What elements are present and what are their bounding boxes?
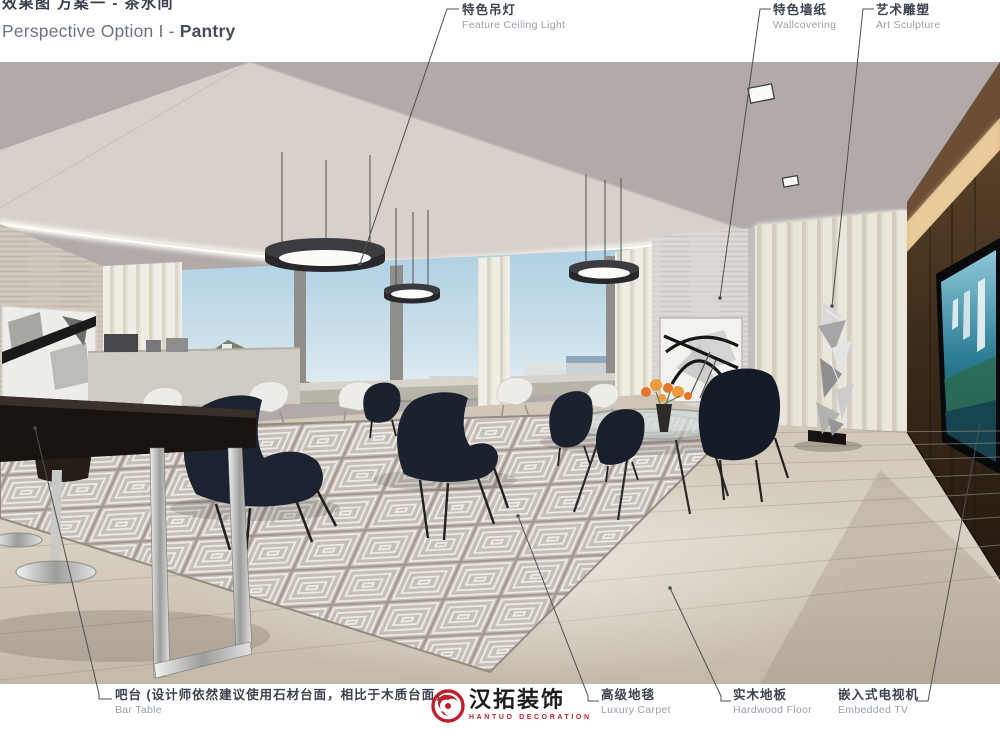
- annotation-feature-ceiling-light-zh: 特色吊灯: [462, 2, 565, 18]
- annotation-embedded-tv: 嵌入式电视机 Embedded TV: [838, 687, 919, 718]
- logo-name-cn: 汉拓装饰: [469, 687, 592, 713]
- annotation-feature-ceiling-light: 特色吊灯 Feature Ceiling Light: [462, 2, 565, 33]
- annotation-hardwood-floor-zh: 实木地板: [733, 687, 812, 703]
- pendant-light-medium: [384, 284, 440, 304]
- interior-render: [0, 0, 1000, 729]
- annotation-luxury-carpet-zh: 高级地毯: [601, 687, 671, 703]
- logo-name-en: HANTUO DECORATION: [469, 714, 592, 721]
- annotation-luxury-carpet-en: Luxury Carpet: [601, 703, 671, 718]
- pendant-light-small: [569, 260, 639, 284]
- annotation-embedded-tv-en: Embedded TV: [838, 703, 919, 718]
- annotation-bar-table: 吧台 (设计师依然建议使用石材台面，相比于木质台面，石材更 Bar Table: [115, 687, 445, 718]
- annotation-luxury-carpet: 高级地毯 Luxury Carpet: [601, 687, 671, 718]
- annotation-embedded-tv-zh: 嵌入式电视机: [838, 687, 919, 703]
- annotation-bar-table-zh: 吧台 (设计师依然建议使用石材台面，相比于木质台面，石材更: [115, 687, 445, 703]
- annotation-feature-ceiling-light-en: Feature Ceiling Light: [462, 18, 565, 33]
- annotation-art-sculpture: 艺术雕塑 Art Sculpture: [876, 2, 941, 33]
- embedded-tv-graphic: [936, 238, 1000, 474]
- annotation-art-sculpture-en: Art Sculpture: [876, 18, 941, 33]
- annotation-wallcovering-zh: 特色墙纸: [773, 2, 836, 18]
- company-logo: 汉拓装饰 HANTUO DECORATION: [429, 687, 592, 727]
- annotation-hardwood-floor: 实木地板 Hardwood Floor: [733, 687, 812, 718]
- annotation-hardwood-floor-en: Hardwood Floor: [733, 703, 812, 718]
- annotation-bar-table-en: Bar Table: [115, 703, 445, 718]
- presentation-page: 效果图 方案一 - 茶水间 Perspective Option I - Pan…: [0, 0, 1000, 729]
- annotation-art-sculpture-zh: 艺术雕塑: [876, 2, 941, 18]
- annotation-wallcovering: 特色墙纸 Wallcovering: [773, 2, 836, 33]
- annotation-wallcovering-en: Wallcovering: [773, 18, 836, 33]
- logo-emblem-icon: [429, 687, 467, 725]
